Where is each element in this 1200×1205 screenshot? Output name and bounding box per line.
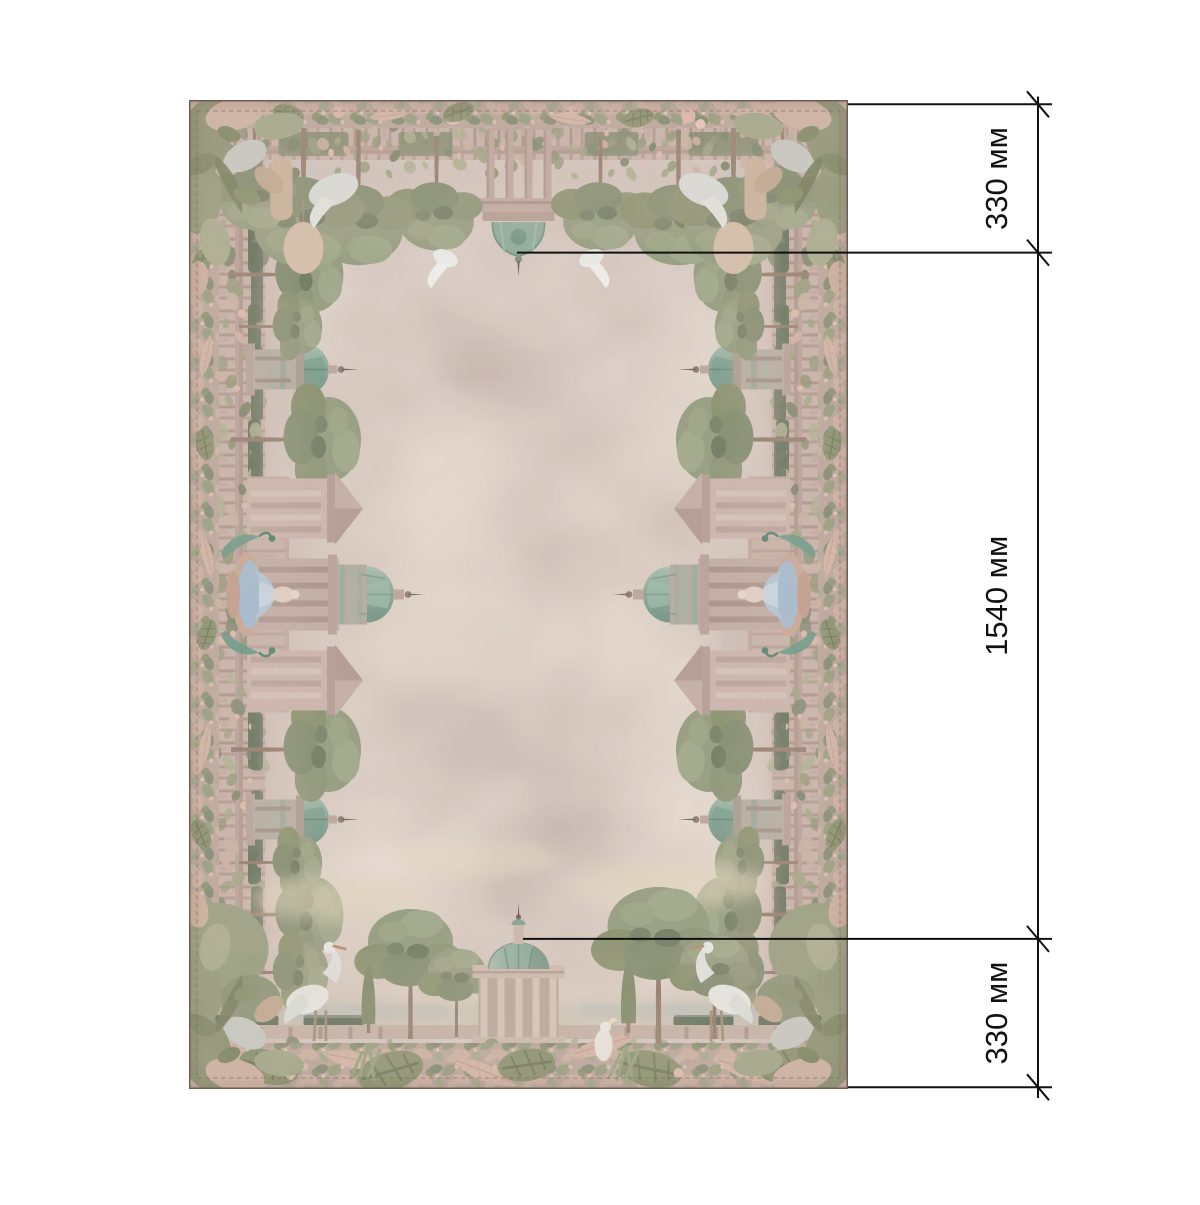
svg-text:1540 мм: 1540 мм (979, 536, 1014, 656)
svg-text:330 мм: 330 мм (979, 962, 1014, 1065)
svg-text:330 мм: 330 мм (979, 127, 1014, 230)
